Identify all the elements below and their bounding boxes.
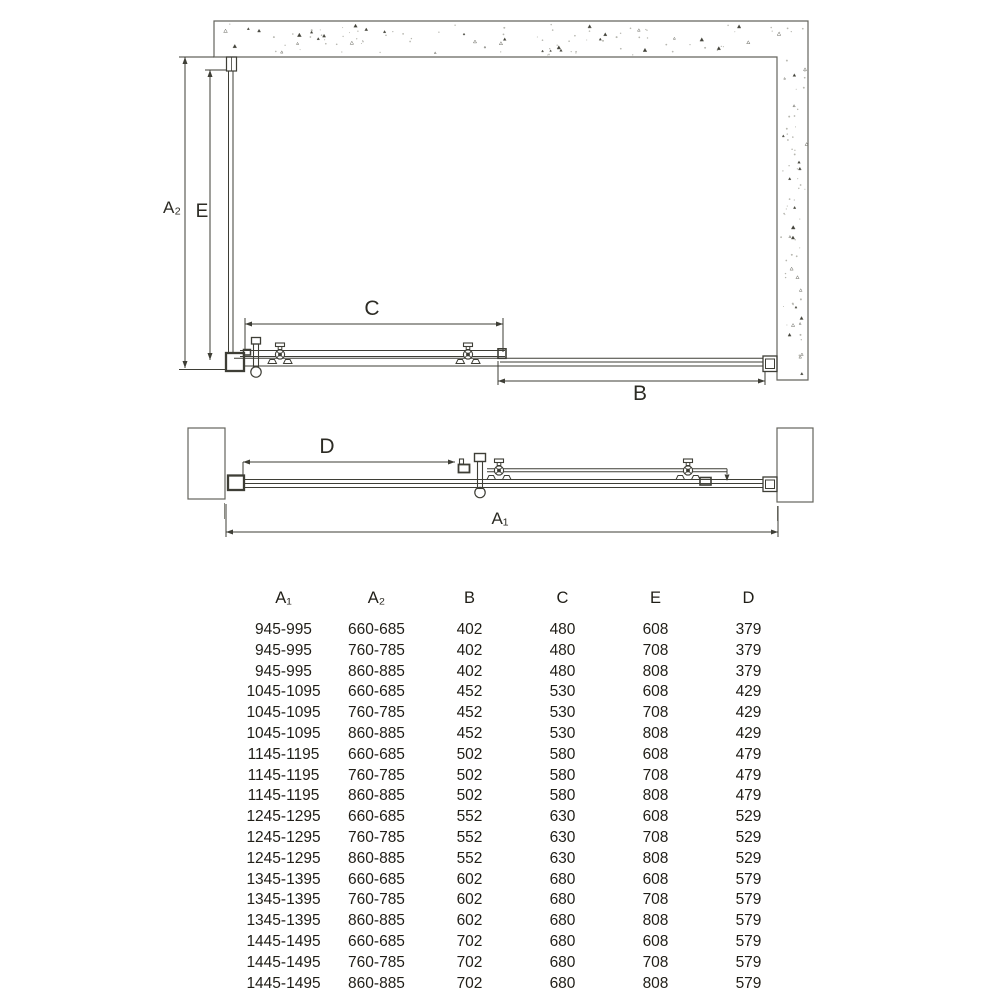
table-row: 1145-1195660-685502580608479 [237,745,795,766]
table-cell: 479 [702,745,795,766]
table-cell: 708 [609,953,702,974]
table-cell: 1045-1095 [237,724,330,745]
table-row: 1145-1195860-885502580808479 [237,786,795,807]
table-cell: 760-785 [330,890,423,911]
table-cell: 808 [609,849,702,870]
table-row: 1245-1295860-885552630808529 [237,849,795,870]
shower-enclosure-diagram: A₂ E C B [0,0,1000,560]
table-cell: 479 [702,786,795,807]
table-cell: 529 [702,849,795,870]
table-cell: 1345-1395 [237,870,330,891]
table-cell: 579 [702,890,795,911]
table-cell: 860-885 [330,724,423,745]
table-cell: 480 [516,620,609,641]
table-cell: 702 [423,953,516,974]
table-cell: 660-685 [330,807,423,828]
table-row: 1145-1195760-785502580708479 [237,766,795,787]
roller-assembly [268,343,292,364]
table-body: 945-995660-685402480608379945-995760-785… [237,620,795,994]
table-cell: 1145-1195 [237,745,330,766]
table-cell: 452 [423,703,516,724]
table-cell: 945-995 [237,662,330,683]
table-cell: 1145-1195 [237,766,330,787]
table-row: 1045-1095660-685452530608429 [237,682,795,703]
table-cell: 608 [609,682,702,703]
handle-knob [251,367,261,377]
table-row: 945-995860-885402480808379 [237,662,795,683]
column-header-e: E [609,589,702,611]
table-row: 945-995660-685402480608379 [237,620,795,641]
plan-walls [214,21,808,380]
front-wall-right [777,428,813,502]
table-cell: 860-885 [330,974,423,995]
table-cell: 429 [702,724,795,745]
table-cell: 1145-1195 [237,786,330,807]
table-row: 1445-1495860-885702680808579 [237,974,795,995]
table-cell: 660-685 [330,620,423,641]
table-cell: 579 [702,953,795,974]
table-cell: 579 [702,870,795,891]
table-cell: 379 [702,662,795,683]
wall-profile-top [227,57,237,71]
table-cell: 708 [609,828,702,849]
table-cell: 579 [702,911,795,932]
table-cell: 680 [516,911,609,932]
table-cell: 579 [702,932,795,953]
table-cell: 630 [516,849,609,870]
table-cell: 608 [609,807,702,828]
table-cell: 480 [516,641,609,662]
table-cell: 429 [702,682,795,703]
table-cell: 429 [702,703,795,724]
table-cell: 480 [516,662,609,683]
table-row: 1445-1495760-785702680708579 [237,953,795,974]
table-cell: 945-995 [237,620,330,641]
dim-label-e: E [196,201,209,222]
table-row: 1445-1495660-685702680608579 [237,932,795,953]
shower-enclosure-spec-page: A₂ E C B [0,0,1000,1000]
table-cell: 760-785 [330,766,423,787]
table-cell: 760-785 [330,953,423,974]
table-cell: 1445-1495 [237,974,330,995]
dim-label-a2: A₂ [163,198,181,217]
table-cell: 579 [702,974,795,995]
table-cell: 708 [609,641,702,662]
table-cell: 608 [609,620,702,641]
table-cell: 602 [423,890,516,911]
table-cell: 552 [423,807,516,828]
table-cell: 502 [423,745,516,766]
table-cell: 708 [609,703,702,724]
table-cell: 808 [609,662,702,683]
table-cell: 530 [516,724,609,745]
table-cell: 402 [423,620,516,641]
table-cell: 530 [516,703,609,724]
table-cell: 379 [702,620,795,641]
corner-profile-plan [226,353,244,371]
table-cell: 680 [516,890,609,911]
door-stopper-left [459,459,470,473]
table-cell: 530 [516,682,609,703]
roller-assembly [456,343,480,364]
table-cell: 630 [516,807,609,828]
table-cell: 502 [423,766,516,787]
dimension-b [498,361,765,385]
table-row: 1345-1395760-785602680708579 [237,890,795,911]
table-cell: 452 [423,682,516,703]
door-handle-plan [251,338,261,378]
table-cell: 808 [609,786,702,807]
corner-profile-front [228,476,244,491]
table-cell: 602 [423,870,516,891]
table-cell: 608 [609,932,702,953]
table-cell: 580 [516,786,609,807]
table-row: 1045-1095760-785452530708429 [237,703,795,724]
table-cell: 552 [423,828,516,849]
table-cell: 1045-1095 [237,703,330,724]
table-cell: 660-685 [330,870,423,891]
table-cell: 1045-1095 [237,682,330,703]
dim-label-b: B [633,382,647,405]
column-header-c: C [516,589,609,611]
table-cell: 680 [516,953,609,974]
table-cell: 402 [423,641,516,662]
table-cell: 808 [609,974,702,995]
dimensions-table: A₁ A₂ B C E D 945-995660-685402480608379… [237,589,795,994]
table-cell: 702 [423,932,516,953]
table-cell: 452 [423,724,516,745]
dimension-d [243,460,455,477]
table-cell: 1245-1295 [237,807,330,828]
table-cell: 808 [609,724,702,745]
table-row: 1345-1395660-685602680608579 [237,870,795,891]
table-cell: 529 [702,807,795,828]
table-row: 1045-1095860-885452530808429 [237,724,795,745]
table-row: 1345-1395860-885602680808579 [237,911,795,932]
table-cell: 660-685 [330,682,423,703]
front-wall-left [188,428,225,499]
table-cell: 502 [423,786,516,807]
table-cell: 608 [609,745,702,766]
table-cell: 760-785 [330,703,423,724]
table-cell: 760-785 [330,828,423,849]
table-cell: 580 [516,766,609,787]
table-cell: 660-685 [330,745,423,766]
table-cell: 860-885 [330,786,423,807]
table-cell: 1245-1295 [237,828,330,849]
table-cell: 708 [609,766,702,787]
table-row: 1245-1295660-685552630608529 [237,807,795,828]
table-cell: 680 [516,932,609,953]
table-cell: 860-885 [330,662,423,683]
column-header-a2: A₂ [330,589,423,611]
table-cell: 1245-1295 [237,849,330,870]
table-cell: 630 [516,828,609,849]
wall-profile-right-plan [763,356,777,372]
dim-label-d: D [319,435,334,458]
door-handle-front [475,454,486,498]
table-cell: 479 [702,766,795,787]
table-cell: 1345-1395 [237,890,330,911]
wall-profile-right-front [763,477,777,492]
table-cell: 602 [423,911,516,932]
column-header-b: B [423,589,516,611]
table-cell: 680 [516,974,609,995]
dim-label-a1: A₁ [491,509,508,528]
table-row: 1245-1295760-785552630708529 [237,828,795,849]
wall-texture [193,24,813,496]
table-header-row: A₁ A₂ B C E D [237,589,795,611]
table-cell: 945-995 [237,641,330,662]
table-cell: 552 [423,849,516,870]
table-row: 945-995760-785402480708379 [237,641,795,662]
dim-label-c: C [364,297,379,320]
table-cell: 529 [702,828,795,849]
table-cell: 860-885 [330,911,423,932]
table-cell: 402 [423,662,516,683]
table-cell: 860-885 [330,849,423,870]
table-cell: 1445-1495 [237,932,330,953]
table-cell: 580 [516,745,609,766]
table-cell: 680 [516,870,609,891]
column-header-d: D [702,589,795,611]
table-cell: 760-785 [330,641,423,662]
table-cell: 1445-1495 [237,953,330,974]
table-cell: 379 [702,641,795,662]
table-cell: 702 [423,974,516,995]
bottom-rail-front [244,480,763,488]
side-glass-panel [229,71,234,353]
table-cell: 708 [609,890,702,911]
table-cell: 608 [609,870,702,891]
column-header-a1: A₁ [237,589,330,611]
table-cell: 660-685 [330,932,423,953]
table-cell: 808 [609,911,702,932]
table-cell: 1345-1395 [237,911,330,932]
